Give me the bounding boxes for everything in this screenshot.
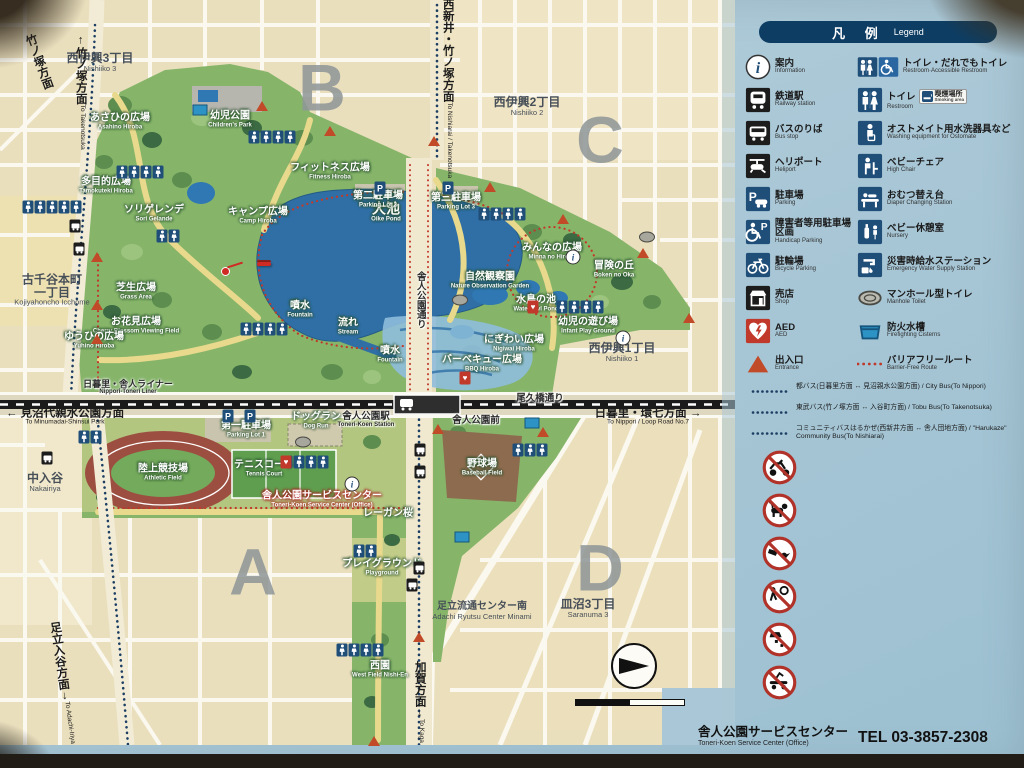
bus-route-label: コミュニティバスはるかぜ(西新井方面 ↔ 舎人団地方面) / "Harukaze…: [796, 425, 1017, 441]
entrance-icon: [745, 351, 771, 377]
prohibition-no-motorcycles: [761, 448, 1017, 491]
legend-item-label: 売店Shop: [775, 290, 794, 306]
legend-item-label: 案内Information: [775, 59, 805, 75]
legend-item-label-jp: 防火水槽: [887, 323, 940, 333]
legend-item-label-jp: 駐輪場: [775, 257, 816, 267]
legend-column-left: i案内Information鉄道駅Railway stationバスのりばBus…: [745, 50, 857, 380]
prohibition-no-skateboarding: [761, 663, 1017, 706]
restroom-accessible-icon: [857, 54, 899, 80]
bus-route-line-icon: [751, 383, 791, 401]
legend-item-nursery: ベビー休憩室Nursery: [857, 215, 1021, 248]
legend-item-label-jp: ベビー休憩室: [887, 224, 944, 234]
legend-item-label-jp: 案内: [775, 59, 805, 69]
legend-item-parking: P駐車場Parking: [745, 182, 857, 215]
legend-item-label-en: Diaper Changing Station: [887, 200, 952, 206]
legend-item-high-chair: ベビーチェアHigh Chair: [857, 149, 1021, 182]
legend-item-label-jp: 災害時給水ステーション: [887, 257, 991, 267]
legend-item-cistern: 防火水槽Firefighting Cisterns: [857, 314, 1021, 347]
prohibition-no-ball-games: [761, 577, 1017, 620]
legend-item-label-en: Emergency Water Supply Station: [887, 266, 991, 272]
legend-item-heliport: ヘリポートHeliport: [745, 149, 857, 182]
legend-item-barrier-free: バリアフリールートBarrier-Free Route: [857, 347, 1021, 380]
legend-item-diaper: おむつ替え台Diaper Changing Station: [857, 182, 1021, 215]
train-icon: [745, 87, 771, 113]
no-ball-games-icon: [761, 578, 798, 620]
manhole-toilet-icon: [857, 285, 883, 311]
prohibition-no-unleashed-dogs: [761, 491, 1017, 534]
legend-item-label: ベビーチェアHigh Chair: [887, 158, 944, 174]
legend-item-label-en: Manhole Toilet: [887, 299, 973, 305]
parking-icon: P: [745, 186, 771, 212]
legend-item-label: 防火水槽Firefighting Cisterns: [887, 323, 940, 339]
service-center-name-jp: 舎人公園サービスセンター: [698, 721, 848, 740]
shop-icon: [745, 285, 771, 311]
smoking-area-badge: 喫煙場所Smoking area: [919, 89, 968, 105]
park-map-sign: BCAD西伊興3丁目Nishiiko 3西伊興2丁目Nishiiko 2西伊興1…: [0, 0, 1024, 768]
legend-item-ostomate: オストメイト用水洗器具などWashing equipment for Ostom…: [857, 116, 1021, 149]
legend-item-handicap-parking: P障害者等用駐車場区画Handicap Parking: [745, 215, 857, 248]
legend-item-label: ヘリポートHeliport: [775, 158, 823, 174]
legend-item-label: 災害時給水ステーションEmergency Water Supply Statio…: [887, 257, 991, 273]
legend-item-restroom-accessible: トイレ・だれでもトイレRestroom·Accessible Restroom: [857, 50, 1021, 83]
legend-item-bicycle-parking: 駐輪場Bicycle Parking: [745, 248, 857, 281]
legend-item-label-en: Barrier-Free Route: [887, 365, 973, 371]
bus-route-line-icon: [751, 425, 791, 443]
legend-item-label-en: Heliport: [775, 167, 823, 173]
map-base: [0, 0, 735, 745]
legend-item-label-en: Shop: [775, 299, 794, 305]
park-map: BCAD西伊興3丁目Nishiiko 3西伊興2丁目Nishiiko 2西伊興1…: [0, 0, 735, 745]
legend-item-label-jp: マンホール型トイレ: [887, 290, 973, 300]
bus-route-row: 東武バス(竹ノ塚方面 ↔ 入谷町方面) / Tobu Bus(To Takeno…: [751, 404, 1017, 422]
diaper-icon: [857, 186, 883, 212]
no-littering-icon: [761, 621, 798, 663]
legend-item-label: トイレ・だれでもトイレRestroom·Accessible Restroom: [903, 59, 1007, 75]
info-icon: i: [745, 54, 771, 80]
legend-item-label: 駐車場Parking: [775, 191, 804, 207]
legend-title: 凡 例 Legend: [759, 21, 997, 43]
restroom-icon: [857, 87, 883, 113]
legend-item-label-en: Parking: [775, 200, 804, 206]
bus-route-row: コミュニティバスはるかぜ(西新井方面 ↔ 舎人団地方面) / "Harukaze…: [751, 425, 1017, 443]
no-unleashed-dogs-icon: [761, 492, 798, 534]
legend-item-label-en: Information: [775, 68, 805, 74]
legend-bus-routes: 都バス(日暮里方面 ↔ 見沼親水公園方面) / City Bus(To Nipp…: [751, 383, 1017, 443]
legend-item-label: 出入口Entrance: [775, 356, 804, 372]
service-center-tel: TEL 03-3857-2308: [858, 729, 988, 747]
legend-item-restroom: トイレ喫煙場所Smoking areaRestroom: [857, 83, 1021, 116]
legend-column-right: トイレ・だれでもトイレRestroom·Accessible Restroomト…: [857, 50, 1021, 380]
legend-title-en: Legend: [894, 27, 924, 37]
legend-item-label-en: Restroom: [887, 104, 967, 110]
barrier-free-icon: [857, 351, 883, 377]
legend-item-label-jp: 出入口: [775, 356, 804, 366]
legend-item-label-en: Entrance: [775, 365, 804, 371]
signboard-photo: BCAD西伊興3丁目Nishiiko 3西伊興2丁目Nishiiko 2西伊興1…: [0, 0, 1024, 768]
legend-item-label-en: Nursery: [887, 233, 944, 239]
legend-item-label-en: AED: [775, 332, 795, 338]
legend-item-label: オストメイト用水洗器具などWashing equipment for Ostom…: [887, 125, 1011, 141]
legend-item-label-en: Firefighting Cisterns: [887, 332, 940, 338]
water-station-icon: [857, 252, 883, 278]
legend-item-label-jp: バリアフリールート: [887, 356, 973, 366]
cistern-icon: [857, 318, 883, 344]
legend-item-label: 鉄道駅Railway station: [775, 92, 815, 108]
legend-item-label: トイレ喫煙場所Smoking areaRestroom: [887, 89, 967, 111]
legend-items: i案内Information鉄道駅Railway stationバスのりばBus…: [745, 50, 1021, 380]
service-center-name-en: Toneri-Koen Service Center (Office): [698, 740, 848, 747]
legend-item-label-en: Handicap Parking: [775, 238, 857, 244]
legend-item-label-jp: トイレ・だれでもトイレ: [903, 59, 1007, 69]
svg-text:P: P: [761, 222, 768, 233]
legend-item-label: 障害者等用駐車場区画Handicap Parking: [775, 219, 857, 244]
prohibition-no-littering: [761, 620, 1017, 663]
photo-bottom-edge: [0, 754, 1024, 768]
legend-item-info: i案内Information: [745, 50, 857, 83]
legend-item-label: おむつ替え台Diaper Changing Station: [887, 191, 952, 207]
legend-item-label: バリアフリールートBarrier-Free Route: [887, 356, 973, 372]
legend-title-jp: 凡 例: [832, 23, 886, 42]
ostomate-icon: [857, 120, 883, 146]
legend-item-label-jp: AED: [775, 323, 795, 333]
legend-item-label: ベビー休憩室Nursery: [887, 224, 944, 240]
legend-panel: 凡 例 Legend i案内Information鉄道駅Railway stat…: [737, 0, 1024, 768]
handicap-parking-icon: P: [745, 219, 771, 245]
legend-prohibitions: [761, 448, 1017, 706]
legend-item-manhole-toilet: マンホール型トイレManhole Toilet: [857, 281, 1021, 314]
bus-icon: [745, 120, 771, 146]
legend-item-shop: 売店Shop: [745, 281, 857, 314]
bicycle-parking-icon: [745, 252, 771, 278]
legend-item-label-en: High Chair: [887, 167, 944, 173]
legend-item-label-jp: バスのりば: [775, 125, 823, 135]
legend-item-label-en: Bicycle Parking: [775, 266, 816, 272]
bus-route-label: 東武バス(竹ノ塚方面 ↔ 入谷町方面) / Tobu Bus(To Takeno…: [796, 404, 992, 412]
legend-item-label-jp: オストメイト用水洗器具など: [887, 125, 1011, 135]
aed-icon: [745, 318, 771, 344]
legend-item-label: 駐輪場Bicycle Parking: [775, 257, 816, 273]
legend-item-label-jp: おむつ替え台: [887, 191, 952, 201]
legend-item-label: AEDAED: [775, 323, 795, 339]
legend-item-label-jp: ヘリポート: [775, 158, 823, 168]
legend-item-label-jp: ベビーチェア: [887, 158, 944, 168]
bus-route-row: 都バス(日暮里方面 ↔ 見沼親水公園方面) / City Bus(To Nipp…: [751, 383, 1017, 401]
high-chair-icon: [857, 153, 883, 179]
no-feeding-icon: [761, 535, 798, 577]
service-center-name: 舎人公園サービスセンター Toneri-Koen Service Center …: [698, 721, 848, 747]
legend-item-train: 鉄道駅Railway station: [745, 83, 857, 116]
legend-item-label-jp: 鉄道駅: [775, 92, 815, 102]
legend-item-label-jp: 障害者等用駐車場区画: [775, 219, 857, 238]
legend-item-label: バスのりばBus stop: [775, 125, 823, 141]
legend-item-label-en: Railway station: [775, 101, 815, 107]
legend-item-bus: バスのりばBus stop: [745, 116, 857, 149]
no-skateboarding-icon: [761, 664, 798, 706]
prohibition-no-feeding: [761, 534, 1017, 577]
svg-text:i: i: [756, 60, 761, 77]
legend-item-label-jp: トイレ喫煙場所Smoking area: [887, 89, 967, 105]
bus-route-line-icon: [751, 404, 791, 422]
heliport-icon: [745, 153, 771, 179]
nursery-icon: [857, 219, 883, 245]
bus-route-label: 都バス(日暮里方面 ↔ 見沼親水公園方面) / City Bus(To Nipp…: [796, 383, 986, 391]
legend-item-water-station: 災害時給水ステーションEmergency Water Supply Statio…: [857, 248, 1021, 281]
legend-item-label-jp: 売店: [775, 290, 794, 300]
legend-item-label-jp: 駐車場: [775, 191, 804, 201]
legend-item-label-en: Bus stop: [775, 134, 823, 140]
legend-item-aed: AEDAED: [745, 314, 857, 347]
legend-item-entrance: 出入口Entrance: [745, 347, 857, 380]
legend-item-label: マンホール型トイレManhole Toilet: [887, 290, 973, 306]
legend-item-label-en: Washing equipment for Ostomate: [887, 134, 1011, 140]
sign-footer: 舎人公園サービスセンター Toneri-Koen Service Center …: [698, 721, 1020, 747]
no-motorcycles-icon: [761, 449, 798, 491]
legend-item-label-en: Restroom·Accessible Restroom: [903, 68, 1007, 74]
